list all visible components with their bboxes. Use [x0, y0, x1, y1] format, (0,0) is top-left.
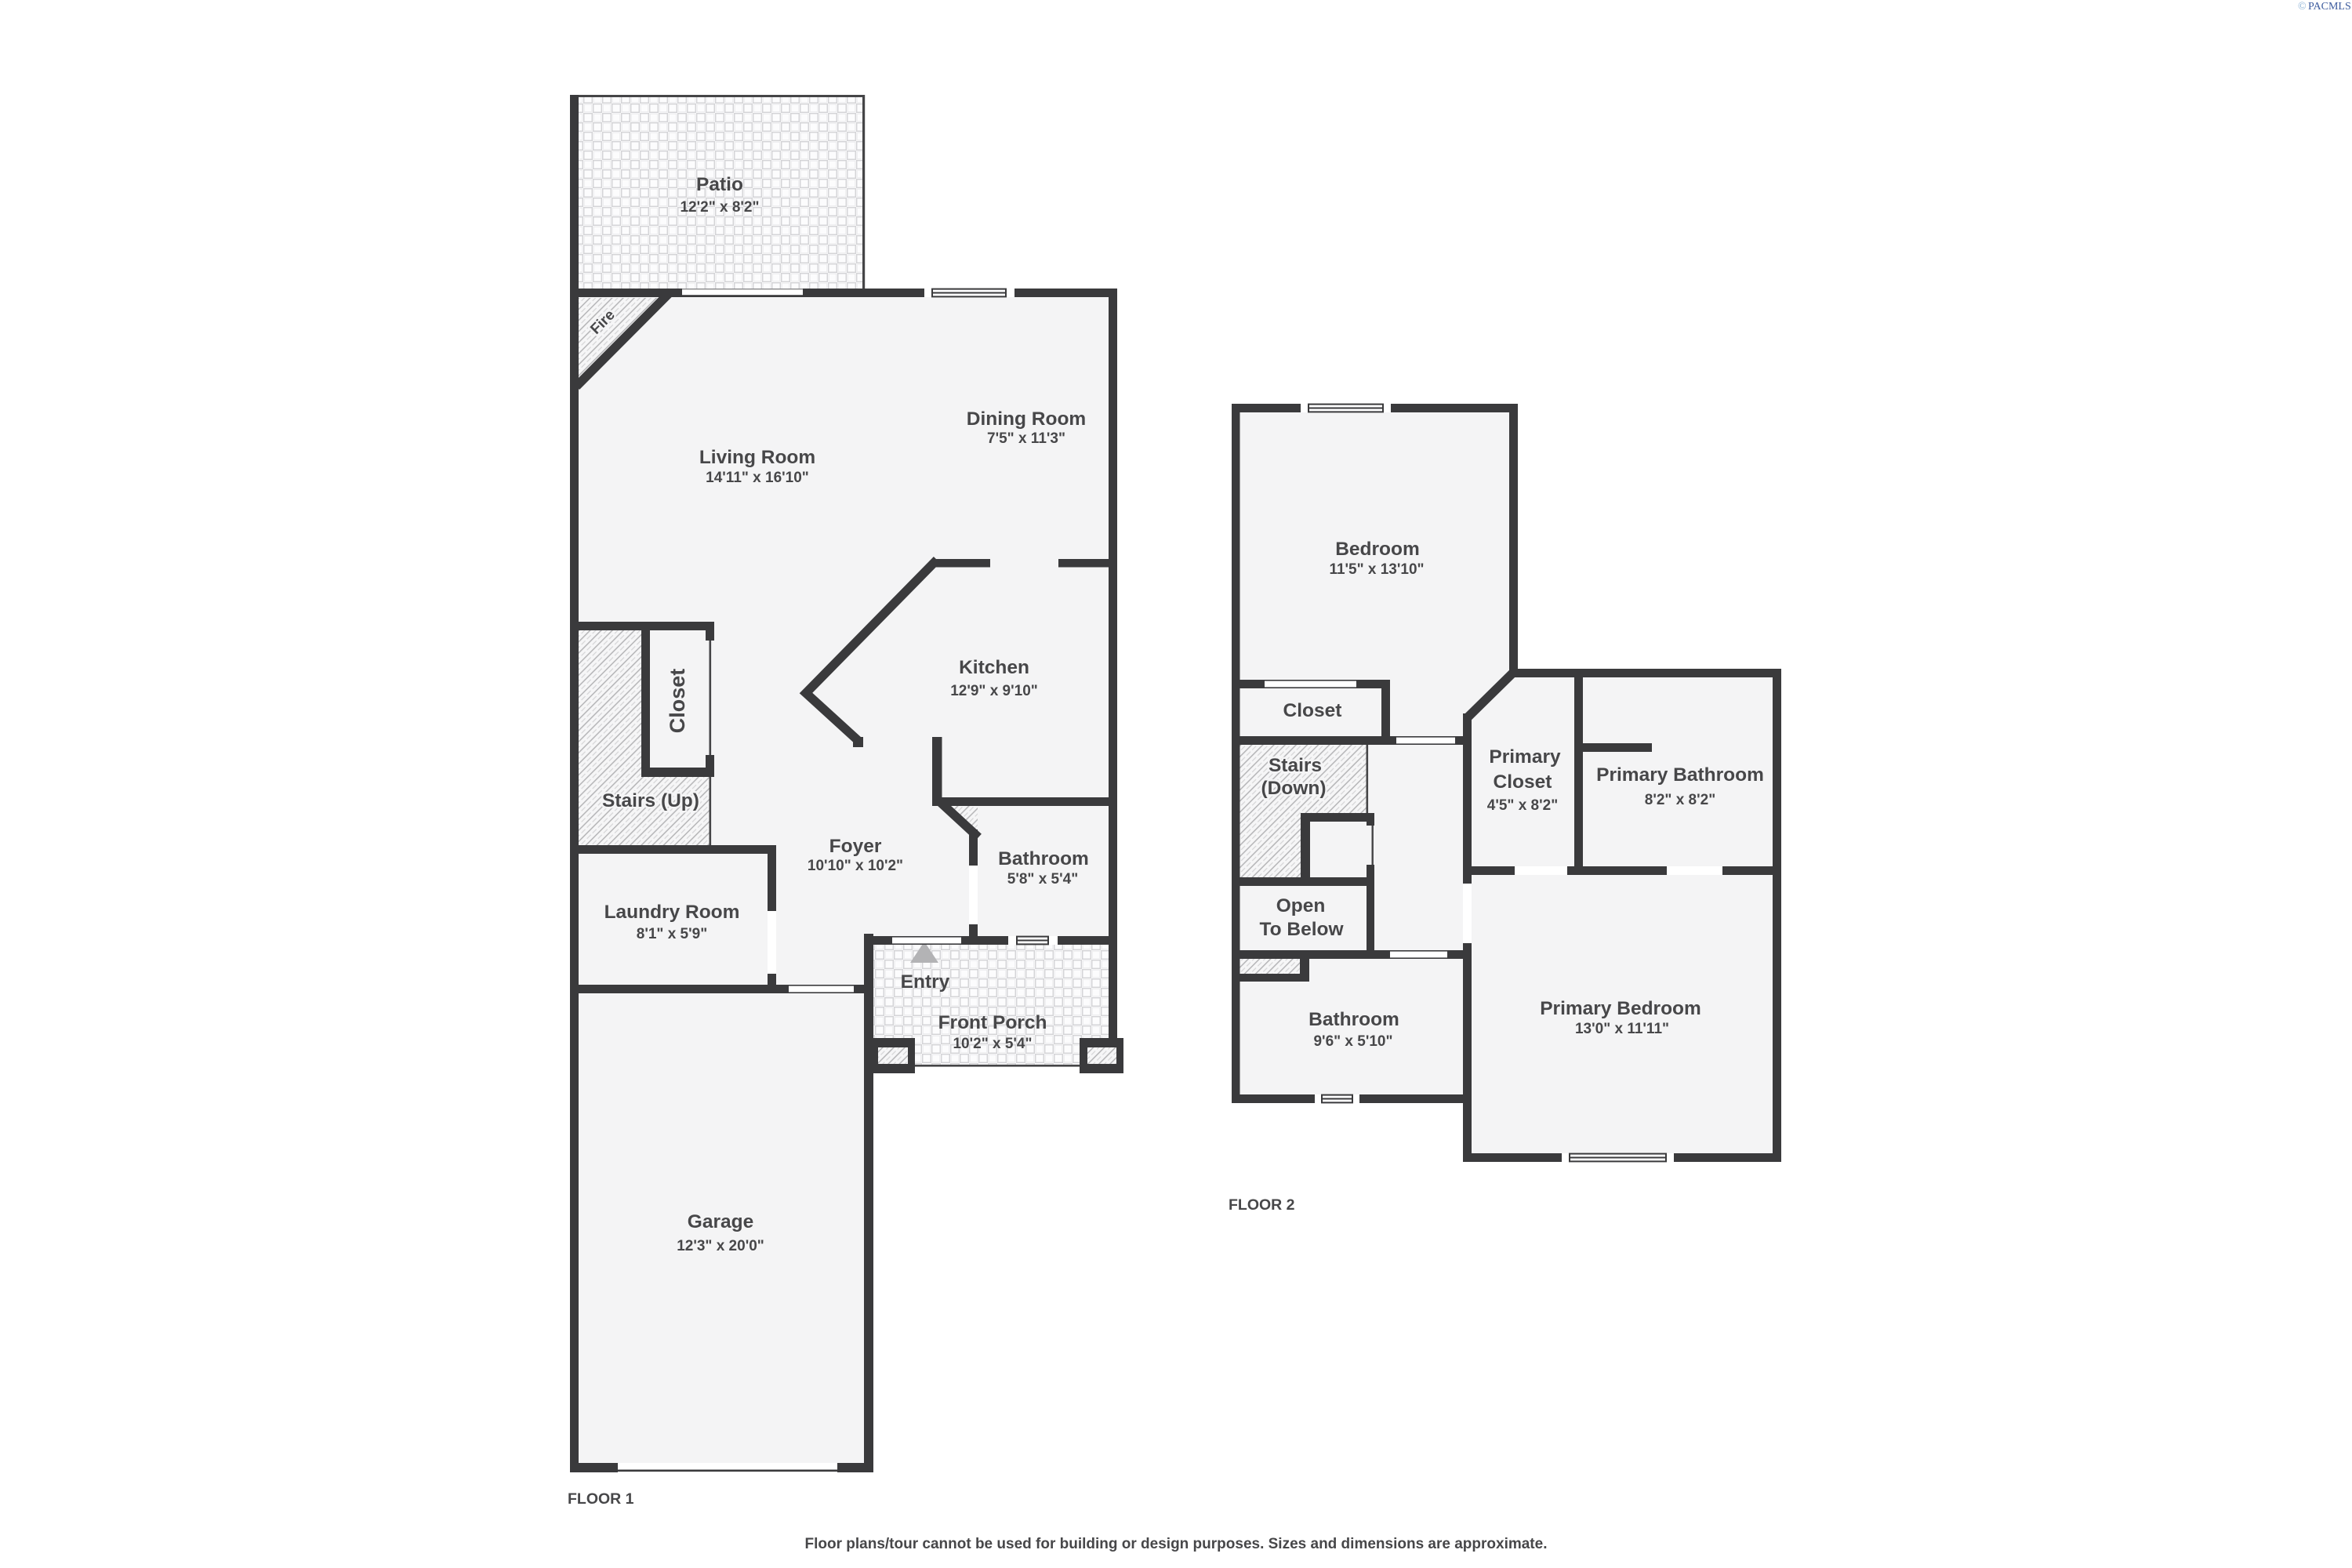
svg-text:4'5" x 8'2": 4'5" x 8'2": [1487, 797, 1558, 814]
svg-text:Front Porch: Front Porch: [938, 1012, 1047, 1033]
svg-text:Garage: Garage: [688, 1211, 753, 1232]
svg-text:Primary Bathroom: Primary Bathroom: [1596, 764, 1764, 786]
svg-text:Living Room: Living Room: [699, 447, 815, 468]
svg-text:Patio: Patio: [696, 174, 743, 195]
svg-text:12'9" x 9'10": 12'9" x 9'10": [950, 683, 1038, 699]
svg-text:To Below: To Below: [1259, 919, 1344, 940]
svg-text:5'8" x 5'4": 5'8" x 5'4": [1007, 871, 1078, 887]
svg-text:Stairs: Stairs: [1269, 755, 1322, 776]
svg-text:Primary: Primary: [1489, 746, 1561, 768]
svg-text:FLOOR 1: FLOOR 1: [568, 1490, 634, 1508]
svg-text:Bedroom: Bedroom: [1335, 539, 1420, 560]
svg-text:Bathroom: Bathroom: [998, 848, 1089, 869]
svg-text:Entry: Entry: [901, 971, 950, 993]
svg-text:7'5" x 11'3": 7'5" x 11'3": [987, 430, 1065, 447]
svg-text:Kitchen: Kitchen: [959, 657, 1029, 678]
svg-text:FLOOR 2: FLOOR 2: [1229, 1196, 1295, 1214]
svg-text:PACMLS: PACMLS: [2308, 1, 2351, 13]
svg-text:©: ©: [2298, 1, 2307, 13]
svg-text:Closet: Closet: [666, 669, 689, 734]
svg-text:Closet: Closet: [1494, 771, 1552, 793]
svg-text:12'3" x 20'0": 12'3" x 20'0": [677, 1238, 764, 1254]
svg-text:10'10" x 10'2": 10'10" x 10'2": [808, 858, 903, 874]
svg-text:Primary Bedroom: Primary Bedroom: [1540, 998, 1701, 1019]
svg-text:11'5" x 13'10": 11'5" x 13'10": [1329, 561, 1424, 578]
svg-text:8'1" x 5'9": 8'1" x 5'9": [637, 926, 707, 942]
svg-text:8'2" x 8'2": 8'2" x 8'2": [1645, 792, 1715, 808]
svg-text:Stairs (Up): Stairs (Up): [602, 790, 699, 811]
svg-text:9'6" x 5'10": 9'6" x 5'10": [1313, 1033, 1392, 1050]
svg-text:Foyer: Foyer: [829, 836, 882, 857]
svg-text:Open: Open: [1276, 895, 1326, 916]
svg-text:Closet: Closet: [1283, 700, 1342, 721]
svg-text:Dining Room: Dining Room: [967, 408, 1086, 430]
svg-text:12'2" x 8'2": 12'2" x 8'2": [680, 199, 759, 216]
svg-text:Laundry Room: Laundry Room: [604, 902, 740, 923]
svg-text:(Down): (Down): [1261, 778, 1327, 799]
svg-text:14'11" x 16'10": 14'11" x 16'10": [706, 470, 809, 486]
svg-text:Floor plans/tour cannot be use: Floor plans/tour cannot be used for buil…: [805, 1536, 1548, 1552]
svg-text:13'0" x 11'11": 13'0" x 11'11": [1575, 1021, 1669, 1037]
svg-text:10'2" x 5'4": 10'2" x 5'4": [953, 1036, 1032, 1052]
svg-text:Bathroom: Bathroom: [1308, 1009, 1399, 1030]
